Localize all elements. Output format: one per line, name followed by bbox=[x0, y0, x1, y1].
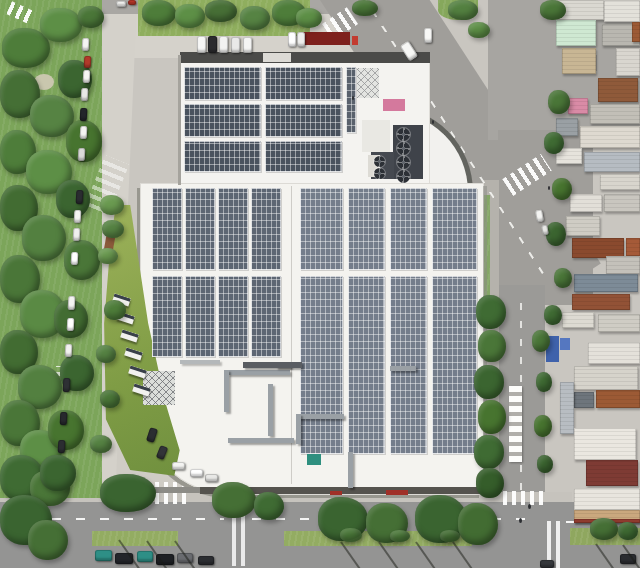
sign-red bbox=[386, 490, 408, 495]
solar-water-heater bbox=[120, 330, 139, 343]
median-structure bbox=[509, 386, 522, 462]
house-solar bbox=[610, 258, 634, 274]
house-roof bbox=[584, 152, 640, 172]
tree bbox=[590, 518, 618, 540]
sign-red bbox=[330, 491, 342, 495]
house-roof bbox=[574, 428, 636, 460]
tree bbox=[100, 390, 120, 408]
left-array bbox=[152, 276, 182, 357]
skylight bbox=[263, 53, 291, 62]
trees-layer bbox=[0, 0, 640, 568]
tree bbox=[0, 130, 36, 174]
tree bbox=[175, 4, 205, 28]
lane-dash-boulevard-1 bbox=[4, 518, 224, 520]
crosswalk-road-left-mid bbox=[56, 366, 78, 376]
pedestrian bbox=[352, 96, 354, 100]
right-array bbox=[300, 276, 343, 454]
pedestrian bbox=[528, 504, 531, 509]
pedestrian bbox=[548, 186, 550, 190]
tree bbox=[100, 474, 156, 512]
tree bbox=[20, 430, 62, 470]
left-array bbox=[251, 276, 281, 357]
left-array bbox=[218, 276, 248, 357]
tree bbox=[0, 185, 38, 231]
roof-seam bbox=[291, 186, 292, 484]
median-mid bbox=[284, 531, 472, 546]
crosswalk-diagonal-top bbox=[322, 7, 358, 40]
lamppost-shadow bbox=[595, 543, 616, 568]
structures-layer bbox=[0, 0, 640, 568]
tree bbox=[546, 222, 566, 246]
junction-mid-right bbox=[498, 130, 593, 305]
car bbox=[71, 252, 79, 265]
alley-green bbox=[478, 195, 490, 325]
awning-pink bbox=[383, 99, 405, 111]
car bbox=[541, 225, 549, 236]
lane-dash-diagonal bbox=[362, 0, 543, 274]
house-roof bbox=[604, 194, 640, 212]
roof-pipe bbox=[268, 384, 273, 436]
van bbox=[400, 41, 418, 62]
car bbox=[243, 37, 252, 53]
tree bbox=[478, 330, 506, 362]
car bbox=[208, 36, 217, 53]
house-roof bbox=[616, 48, 640, 76]
car bbox=[115, 553, 133, 564]
apron-curve-plaza bbox=[96, 355, 208, 497]
tree bbox=[468, 22, 490, 38]
markings-layer bbox=[0, 0, 640, 568]
fan-housing bbox=[371, 152, 394, 179]
building-upper-block bbox=[180, 55, 430, 187]
tree bbox=[0, 495, 52, 545]
tree bbox=[476, 295, 506, 329]
tree bbox=[2, 28, 50, 68]
house-roof bbox=[602, 24, 640, 46]
house-solar bbox=[570, 54, 596, 70]
crossing-right bbox=[547, 521, 561, 568]
alley-right bbox=[483, 180, 499, 492]
roof-pipe bbox=[276, 362, 302, 368]
aerial-photo bbox=[0, 0, 640, 568]
car bbox=[116, 1, 126, 7]
car bbox=[95, 550, 112, 561]
roof-pipe bbox=[243, 362, 291, 368]
pedestrian bbox=[519, 518, 522, 523]
tree bbox=[366, 503, 408, 543]
roof-pipe bbox=[224, 370, 229, 412]
house-roof bbox=[556, 118, 578, 136]
lamppost-shadow bbox=[340, 541, 363, 568]
tree bbox=[98, 248, 118, 264]
tree bbox=[0, 455, 44, 501]
tree bbox=[30, 95, 74, 137]
house-roof bbox=[604, 0, 640, 22]
crosswalk-diagonal-mid bbox=[502, 154, 551, 196]
equipment-box bbox=[368, 155, 380, 177]
house-roof bbox=[600, 174, 640, 190]
tree bbox=[415, 495, 467, 543]
apron-top bbox=[96, 0, 386, 58]
left-array bbox=[251, 188, 281, 270]
house-roof bbox=[574, 392, 594, 408]
house-roof bbox=[598, 314, 640, 332]
house-roof bbox=[586, 460, 638, 486]
car bbox=[231, 37, 240, 53]
tree bbox=[0, 70, 40, 118]
house-roof bbox=[572, 294, 630, 310]
car bbox=[620, 554, 636, 564]
car bbox=[205, 474, 218, 482]
car bbox=[65, 344, 73, 357]
upper-array bbox=[346, 67, 356, 133]
median-left bbox=[92, 531, 178, 546]
solar-panels-layer bbox=[0, 0, 640, 568]
house-roof bbox=[566, 216, 600, 236]
car bbox=[74, 210, 82, 223]
hvac-fan-icon bbox=[397, 128, 410, 141]
tree bbox=[476, 468, 504, 498]
crosswalk-boulevard-left bbox=[128, 482, 186, 504]
tree bbox=[352, 0, 378, 16]
roads-layer bbox=[0, 0, 640, 568]
tree bbox=[340, 528, 362, 542]
house-roof bbox=[606, 256, 640, 274]
tree bbox=[142, 0, 176, 26]
tree bbox=[548, 90, 570, 114]
upper-array bbox=[265, 67, 342, 100]
tree bbox=[474, 365, 504, 399]
crosswalk-top-left bbox=[6, 1, 35, 24]
tree bbox=[56, 180, 90, 218]
solar-water-heater bbox=[132, 384, 151, 397]
tree bbox=[28, 520, 68, 560]
blue-container bbox=[546, 336, 559, 362]
house-roof bbox=[562, 312, 594, 328]
house-roof bbox=[588, 342, 640, 364]
right-array bbox=[432, 188, 477, 270]
tree bbox=[458, 503, 498, 545]
tree bbox=[536, 372, 552, 392]
house-roof bbox=[560, 382, 574, 434]
lamppost-shadow bbox=[452, 541, 475, 568]
heaters-layer bbox=[0, 0, 640, 568]
car bbox=[82, 38, 90, 51]
lamppost-shadow bbox=[118, 539, 141, 568]
tree bbox=[440, 530, 460, 542]
upper-array bbox=[184, 67, 261, 100]
lamppost-shadow bbox=[174, 540, 197, 568]
upper-array bbox=[184, 104, 261, 137]
house-roof bbox=[632, 22, 640, 42]
house-roof bbox=[574, 274, 638, 292]
facade-top-edge bbox=[180, 52, 430, 63]
fan-housing bbox=[393, 125, 423, 179]
road-diagonal bbox=[311, 0, 601, 314]
tree bbox=[254, 492, 284, 520]
solar-water-heater bbox=[116, 312, 135, 325]
tree bbox=[478, 400, 506, 434]
car bbox=[156, 445, 168, 460]
house-roof bbox=[556, 0, 604, 20]
left-array bbox=[185, 276, 215, 357]
tree bbox=[272, 0, 306, 26]
tree bbox=[22, 215, 66, 261]
houses-layer bbox=[0, 0, 640, 568]
solar-water-heater bbox=[124, 348, 143, 361]
crossing-ladder bbox=[232, 504, 246, 566]
tree bbox=[102, 220, 124, 238]
roof-pipe bbox=[228, 438, 294, 443]
house-roof bbox=[580, 126, 640, 148]
shadows-layer bbox=[0, 0, 640, 568]
lane-dash-street-right bbox=[520, 300, 522, 490]
car bbox=[424, 28, 432, 43]
house-roof bbox=[574, 519, 640, 523]
equipment-box bbox=[362, 120, 390, 152]
car bbox=[128, 0, 136, 5]
tree bbox=[104, 300, 126, 320]
facade-bottom-dark bbox=[200, 487, 484, 494]
tree bbox=[240, 6, 270, 30]
billboard-red bbox=[300, 32, 350, 45]
house-roof bbox=[598, 78, 638, 102]
tree bbox=[64, 240, 100, 280]
island-top bbox=[438, 0, 478, 20]
house-roof bbox=[572, 238, 624, 258]
tree bbox=[537, 455, 553, 473]
junction-top-right bbox=[488, 0, 640, 140]
boulevard bbox=[0, 502, 640, 568]
car bbox=[63, 378, 71, 392]
roof-pipe bbox=[228, 370, 290, 375]
car bbox=[80, 126, 88, 139]
tree bbox=[40, 455, 76, 491]
crosswalk-street-right bbox=[503, 491, 543, 505]
tree bbox=[474, 435, 504, 469]
blue-container bbox=[560, 338, 570, 350]
car bbox=[198, 556, 214, 565]
tree bbox=[552, 178, 572, 200]
park bbox=[0, 0, 102, 498]
tree bbox=[48, 410, 84, 450]
fence-red bbox=[352, 36, 358, 45]
tree bbox=[96, 345, 116, 363]
car bbox=[146, 427, 158, 443]
tree bbox=[205, 0, 237, 22]
car bbox=[288, 32, 296, 47]
cars-layer bbox=[0, 0, 640, 568]
tree bbox=[20, 290, 66, 338]
car bbox=[81, 88, 89, 101]
car bbox=[84, 56, 92, 68]
house-roof bbox=[562, 48, 596, 74]
tree bbox=[318, 497, 368, 541]
lane-dash-boulevard-3 bbox=[566, 521, 636, 523]
lamppost-shadow bbox=[415, 541, 438, 568]
car bbox=[156, 554, 174, 565]
sidewalk-boulevard bbox=[0, 492, 572, 504]
tree bbox=[540, 0, 566, 20]
roof-pipe bbox=[180, 360, 220, 364]
building-layer bbox=[0, 0, 640, 568]
tree bbox=[0, 330, 38, 374]
hvac-fan-icon bbox=[397, 142, 410, 155]
parking-stripes bbox=[85, 155, 129, 215]
park-clearing bbox=[34, 74, 54, 90]
car bbox=[535, 209, 544, 222]
lamppost-shadow bbox=[622, 544, 640, 568]
tree bbox=[448, 0, 478, 20]
roof-pipe bbox=[298, 414, 344, 419]
tree bbox=[544, 305, 562, 325]
tree bbox=[30, 470, 70, 506]
right-array bbox=[348, 188, 385, 270]
car bbox=[297, 32, 305, 47]
tree bbox=[0, 255, 40, 303]
tree bbox=[390, 530, 410, 542]
tree bbox=[618, 522, 638, 540]
car bbox=[219, 36, 228, 53]
left-array bbox=[152, 188, 182, 270]
car bbox=[190, 469, 203, 477]
tree bbox=[40, 8, 82, 42]
tree bbox=[78, 6, 104, 28]
tree bbox=[58, 60, 92, 98]
right-array bbox=[390, 276, 427, 454]
road-left bbox=[41, 0, 99, 511]
tree bbox=[54, 300, 88, 338]
tree bbox=[544, 132, 564, 154]
teal-box bbox=[307, 454, 321, 465]
solar-water-heater bbox=[112, 294, 131, 307]
hedge-top bbox=[138, 0, 310, 36]
lane-dash-boulevard-2 bbox=[252, 518, 540, 520]
house-roof bbox=[596, 390, 640, 408]
car bbox=[80, 108, 88, 121]
steel-truss bbox=[357, 68, 379, 98]
pedestrians-layer bbox=[0, 0, 640, 568]
storefront-awning bbox=[233, 480, 323, 489]
verge-right bbox=[570, 528, 640, 545]
lamppost-shadow bbox=[146, 540, 169, 568]
left-array bbox=[185, 188, 215, 270]
solar-water-heater bbox=[128, 366, 147, 379]
car bbox=[73, 228, 81, 241]
planter bbox=[104, 225, 117, 250]
house-roof bbox=[556, 20, 596, 46]
roof-pipe bbox=[296, 414, 301, 444]
facade-bottom-light bbox=[140, 487, 200, 493]
car bbox=[68, 296, 76, 310]
steel-truss bbox=[143, 371, 175, 405]
car bbox=[177, 553, 193, 563]
house-roof bbox=[590, 104, 640, 124]
tree bbox=[90, 435, 112, 453]
house-roof bbox=[574, 510, 640, 522]
upper-edge-line bbox=[178, 55, 181, 185]
house-roof bbox=[574, 488, 640, 510]
tree bbox=[18, 365, 62, 409]
car bbox=[197, 36, 206, 53]
greens-layer bbox=[0, 0, 640, 568]
car bbox=[540, 560, 554, 568]
tree bbox=[60, 355, 94, 391]
left-array bbox=[218, 188, 248, 270]
car bbox=[58, 440, 66, 453]
tree bbox=[212, 482, 256, 518]
hvac-fan-icon bbox=[397, 170, 410, 183]
green-berm bbox=[96, 205, 186, 487]
hvac-fan-icon bbox=[374, 156, 385, 167]
roof-pipe bbox=[348, 452, 353, 488]
building-rounded-corner bbox=[356, 106, 473, 193]
pipes-layer bbox=[0, 0, 640, 568]
car bbox=[172, 462, 185, 470]
right-array bbox=[300, 188, 343, 270]
tree bbox=[554, 268, 572, 288]
car bbox=[67, 318, 75, 331]
tree bbox=[100, 195, 124, 215]
house-roof bbox=[568, 98, 588, 114]
tree bbox=[532, 330, 550, 352]
crosswalk-road-left-low bbox=[40, 480, 66, 493]
house-roof bbox=[556, 148, 582, 164]
car bbox=[83, 70, 91, 83]
tree bbox=[296, 8, 322, 28]
pavement-top-left bbox=[0, 0, 72, 28]
tree bbox=[0, 400, 40, 446]
tree bbox=[534, 415, 552, 437]
tree bbox=[66, 120, 102, 162]
upper-array bbox=[265, 141, 342, 172]
hvac-fan-icon bbox=[397, 156, 410, 169]
sidewalk-left bbox=[77, 0, 137, 509]
house-roof bbox=[570, 194, 602, 212]
right-array bbox=[390, 188, 427, 270]
building-lower-block bbox=[140, 183, 484, 495]
street-right bbox=[497, 285, 545, 505]
lamppost-shadow bbox=[378, 541, 401, 568]
house-roof bbox=[574, 366, 638, 390]
car bbox=[76, 190, 84, 204]
car bbox=[137, 551, 153, 562]
alley-shadow bbox=[483, 186, 487, 486]
upper-array bbox=[184, 141, 261, 172]
road-top-strip bbox=[60, 0, 340, 14]
right-array bbox=[348, 276, 385, 454]
upper-array bbox=[265, 104, 342, 137]
car bbox=[78, 148, 86, 161]
fans-layer bbox=[0, 0, 640, 568]
pedestrian bbox=[432, 120, 434, 124]
hvac-fan-icon bbox=[374, 168, 385, 179]
truss-layer bbox=[0, 0, 640, 568]
right-array bbox=[432, 276, 477, 454]
house-roof bbox=[626, 238, 640, 256]
car bbox=[60, 412, 68, 425]
roof-pipe bbox=[390, 366, 416, 371]
tree bbox=[26, 150, 72, 194]
